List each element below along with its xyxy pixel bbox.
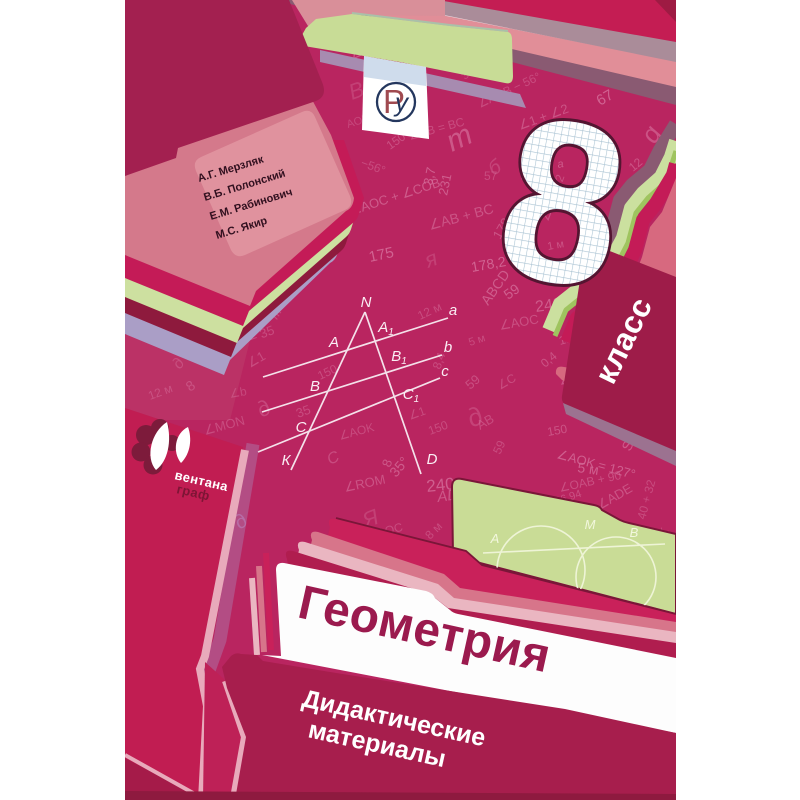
svg-text:B: B bbox=[630, 525, 639, 540]
svg-text:b: b bbox=[444, 339, 452, 356]
svg-text:c: c bbox=[441, 363, 449, 380]
svg-text:D: D bbox=[427, 451, 438, 468]
svg-text:B: B bbox=[310, 378, 320, 395]
svg-text:C: C bbox=[296, 419, 307, 436]
svg-text:у: у bbox=[393, 87, 410, 117]
svg-text:a: a bbox=[449, 302, 457, 319]
svg-text:К: К bbox=[282, 452, 292, 469]
svg-text:N: N bbox=[361, 294, 372, 311]
svg-text:M: M bbox=[585, 517, 596, 532]
svg-text:A: A bbox=[490, 531, 500, 546]
svg-text:A: A bbox=[328, 334, 339, 351]
